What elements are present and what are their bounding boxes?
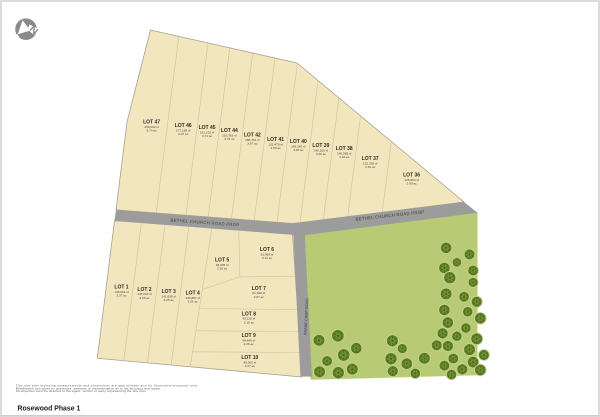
svg-text:2.81 ac: 2.81 ac <box>365 165 376 169</box>
svg-text:3.25 ac: 3.25 ac <box>164 298 175 302</box>
svg-text:3.28 ac: 3.28 ac <box>139 296 150 300</box>
svg-text:3.73 ac: 3.73 ac <box>224 137 235 141</box>
svg-text:2.20 ac: 2.20 ac <box>217 267 228 271</box>
svg-text:2.89 ac: 2.89 ac <box>407 182 418 186</box>
svg-text:Rosewood Phase 1: Rosewood Phase 1 <box>18 406 81 413</box>
svg-text:3.71 ac: 3.71 ac <box>202 134 213 138</box>
svg-text:3.21 ac: 3.21 ac <box>188 300 199 304</box>
svg-text:3.37 ac: 3.37 ac <box>116 294 127 298</box>
svg-text:2.11 ac: 2.11 ac <box>262 256 272 260</box>
svg-text:2.27 ac: 2.27 ac <box>245 364 256 368</box>
svg-text:3.36 ac: 3.36 ac <box>316 152 327 156</box>
svg-text:5.74 ac: 5.74 ac <box>147 129 158 133</box>
svg-text:All enquiries must be directed: All enquiries must be directed to the ag… <box>16 389 147 393</box>
svg-text:3.50 ac: 3.50 ac <box>271 146 282 150</box>
svg-text:2.07 ac: 2.07 ac <box>254 295 265 299</box>
svg-text:3.67 ac: 3.67 ac <box>247 142 258 146</box>
svg-text:3.24 ac: 3.24 ac <box>339 155 350 159</box>
svg-text:3.40 ac: 3.40 ac <box>293 148 304 152</box>
svg-text:2.18 ac: 2.18 ac <box>244 320 255 324</box>
svg-text:2.26 ac: 2.26 ac <box>244 342 255 346</box>
svg-text:4.07 ac: 4.07 ac <box>178 132 189 136</box>
